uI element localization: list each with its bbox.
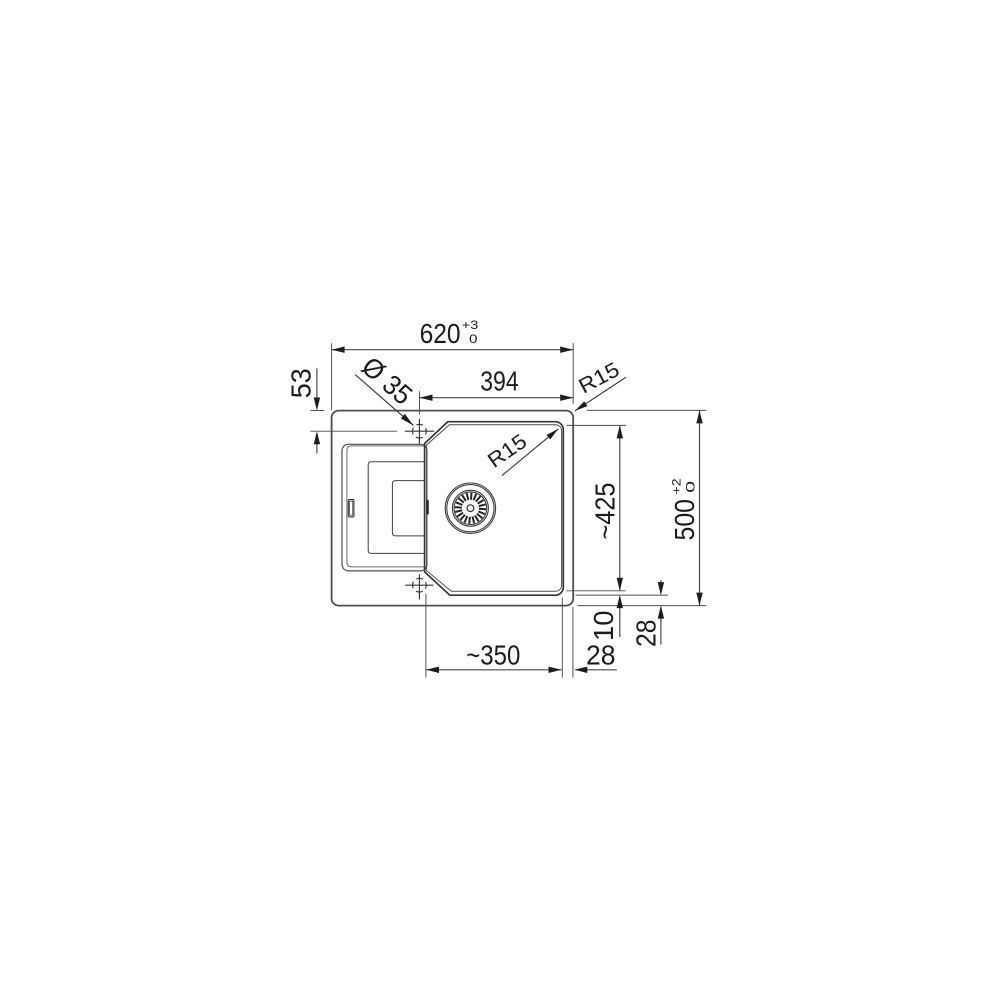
svg-text:28: 28 [630, 620, 661, 648]
svg-text:620: 620 [420, 318, 461, 349]
svg-text:+3: +3 [462, 318, 479, 332]
svg-text:500: 500 [669, 499, 700, 541]
svg-text:0: 0 [683, 480, 697, 493]
svg-text:0: 0 [469, 332, 478, 346]
svg-text:10: 10 [588, 611, 619, 642]
svg-text:~425: ~425 [590, 483, 621, 540]
svg-text:53: 53 [286, 368, 317, 398]
svg-text:~350: ~350 [466, 639, 520, 670]
svg-text:28: 28 [586, 640, 616, 671]
svg-text:394: 394 [480, 366, 519, 397]
svg-text:+2: +2 [669, 478, 683, 494]
